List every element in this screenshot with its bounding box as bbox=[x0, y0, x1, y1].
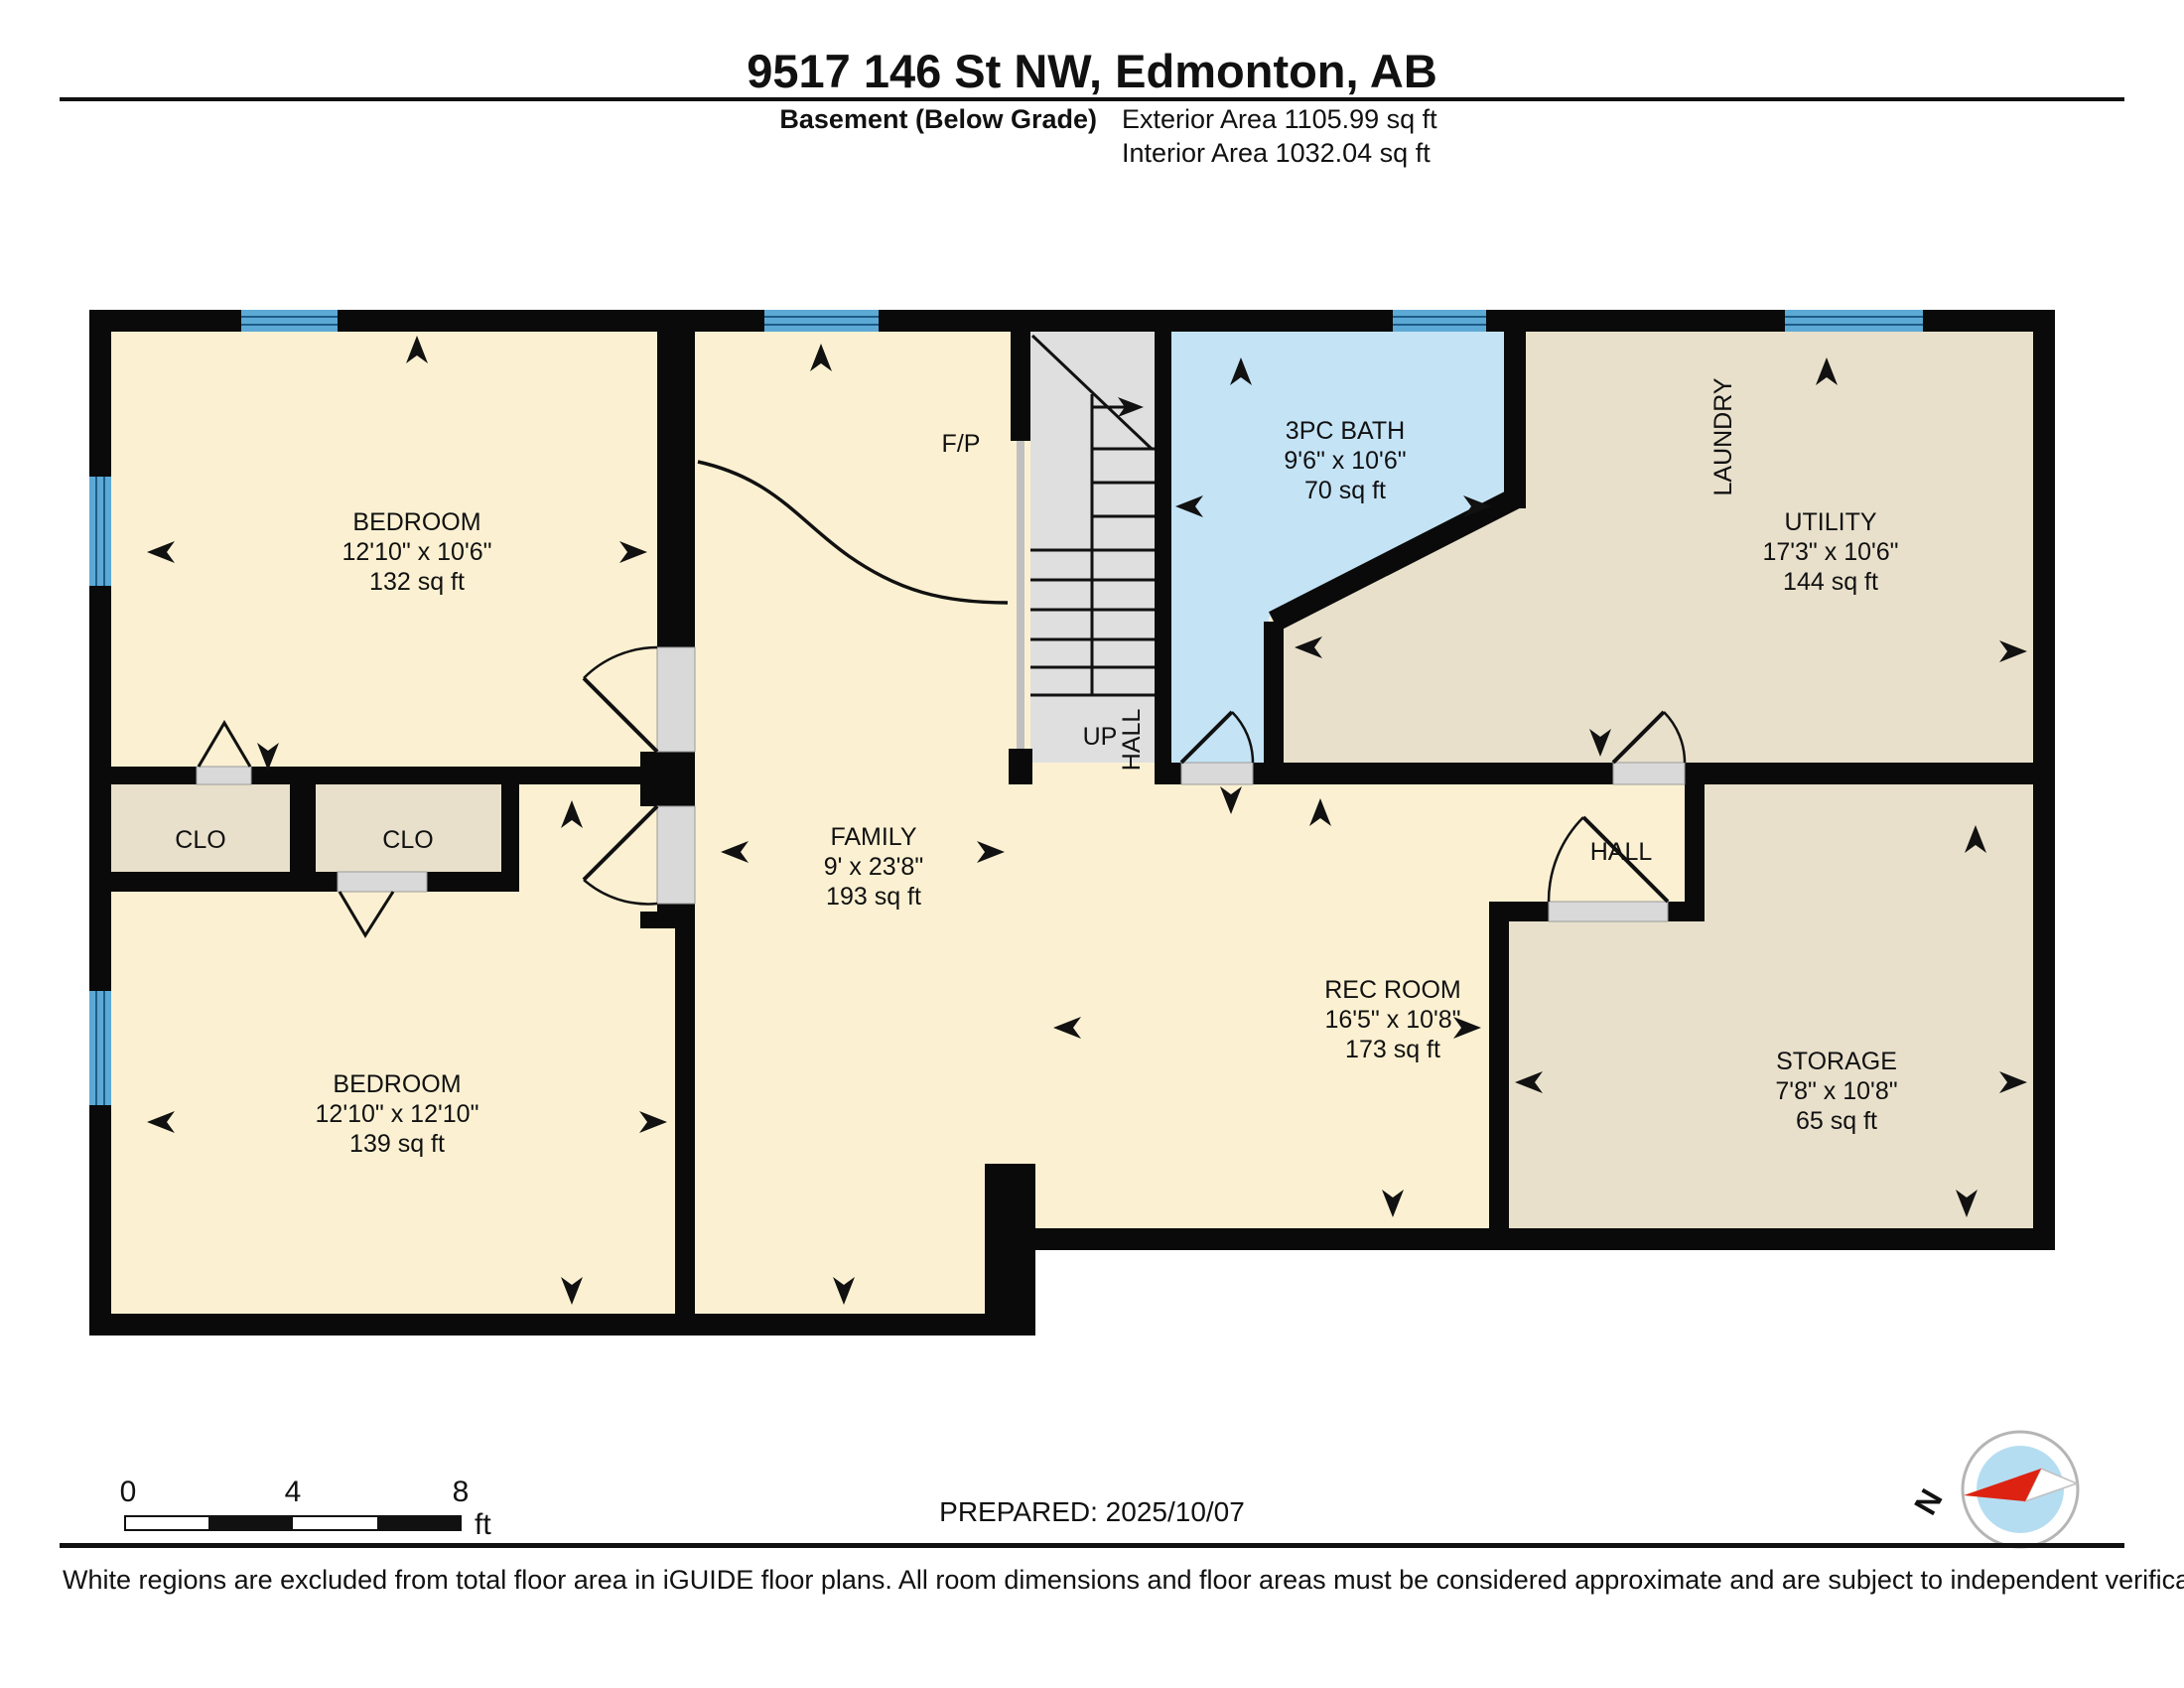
fireplace-label: F/P bbox=[942, 430, 981, 458]
footer-divider bbox=[60, 1543, 2124, 1548]
floor-label: Basement (Below Grade) bbox=[779, 104, 1097, 134]
door-opening bbox=[657, 647, 695, 752]
wall bbox=[657, 332, 695, 647]
scale-bar-seg-2 bbox=[377, 1516, 461, 1530]
exterior-area: Exterior Area 1105.99 sq ft bbox=[1122, 104, 1437, 134]
scale-tick-0: 0 bbox=[120, 1476, 137, 1508]
floor-plan-svg: 9517 146 St NW, Edmonton, AB Basement (B… bbox=[0, 0, 2184, 1688]
header-divider bbox=[60, 97, 2124, 101]
up-label: UP bbox=[1083, 723, 1118, 751]
wall bbox=[290, 784, 316, 872]
wall bbox=[1685, 784, 1705, 921]
wall bbox=[1011, 332, 1030, 441]
window bbox=[89, 477, 111, 586]
compass-north-label: N bbox=[1907, 1482, 1950, 1520]
window bbox=[1785, 310, 1923, 332]
wall bbox=[1253, 763, 1284, 784]
page-title: 9517 146 St NW, Edmonton, AB bbox=[747, 45, 1437, 97]
wall bbox=[89, 1314, 1035, 1336]
wall bbox=[1504, 332, 1526, 508]
wall bbox=[111, 767, 655, 784]
window bbox=[89, 991, 111, 1105]
wall bbox=[111, 872, 519, 892]
wall bbox=[2033, 310, 2055, 1250]
wall bbox=[501, 784, 519, 872]
wall bbox=[675, 928, 695, 1314]
compass-icon: N bbox=[1907, 1432, 2078, 1547]
door-opening bbox=[1613, 763, 1685, 784]
window bbox=[241, 310, 338, 332]
footer-disclaimer: White regions are excluded from total fl… bbox=[63, 1565, 2184, 1595]
laundry-label: LAUNDRY bbox=[1709, 377, 1737, 495]
hall-label: HALL bbox=[1590, 838, 1653, 866]
scale-bar: 0 4 8 ft bbox=[120, 1476, 492, 1541]
door-opening bbox=[197, 767, 251, 784]
door-opening bbox=[1181, 763, 1253, 784]
wall bbox=[1489, 921, 1509, 1228]
wall bbox=[1009, 749, 1032, 784]
scale-bar-seg-1 bbox=[208, 1516, 293, 1530]
room-floors bbox=[111, 332, 2033, 1314]
scale-unit: ft bbox=[475, 1508, 491, 1541]
window bbox=[1393, 310, 1486, 332]
wall bbox=[640, 912, 695, 928]
wall bbox=[1264, 622, 1284, 784]
door-opening bbox=[657, 806, 695, 904]
scale-tick-4: 4 bbox=[285, 1476, 302, 1508]
door-opening bbox=[1549, 902, 1668, 921]
closet-1-label: CLO bbox=[175, 826, 225, 854]
scale-tick-8: 8 bbox=[453, 1476, 470, 1508]
footer: White regions are excluded from total fl… bbox=[60, 1543, 2184, 1595]
wall bbox=[985, 1228, 2055, 1250]
interior-area: Interior Area 1032.04 sq ft bbox=[1122, 138, 1431, 168]
wall bbox=[89, 310, 111, 1336]
wall bbox=[89, 310, 2055, 332]
window bbox=[764, 310, 879, 332]
stair-rail bbox=[1017, 441, 1024, 751]
wall bbox=[1155, 763, 1181, 784]
room-label-family: FAMILY9' x 23'8"193 sq ft bbox=[824, 823, 923, 911]
floor-plan-page: 9517 146 St NW, Edmonton, AB Basement (B… bbox=[0, 0, 2184, 1688]
header: 9517 146 St NW, Edmonton, AB Basement (B… bbox=[60, 45, 2124, 168]
prepared-date: PREPARED: 2025/10/07 bbox=[939, 1496, 1245, 1527]
wall bbox=[985, 1164, 1035, 1336]
closet-2-label: CLO bbox=[382, 826, 433, 854]
wall bbox=[1155, 332, 1171, 784]
door-opening bbox=[338, 872, 427, 892]
stair-hall-label: HALL bbox=[1118, 709, 1146, 772]
